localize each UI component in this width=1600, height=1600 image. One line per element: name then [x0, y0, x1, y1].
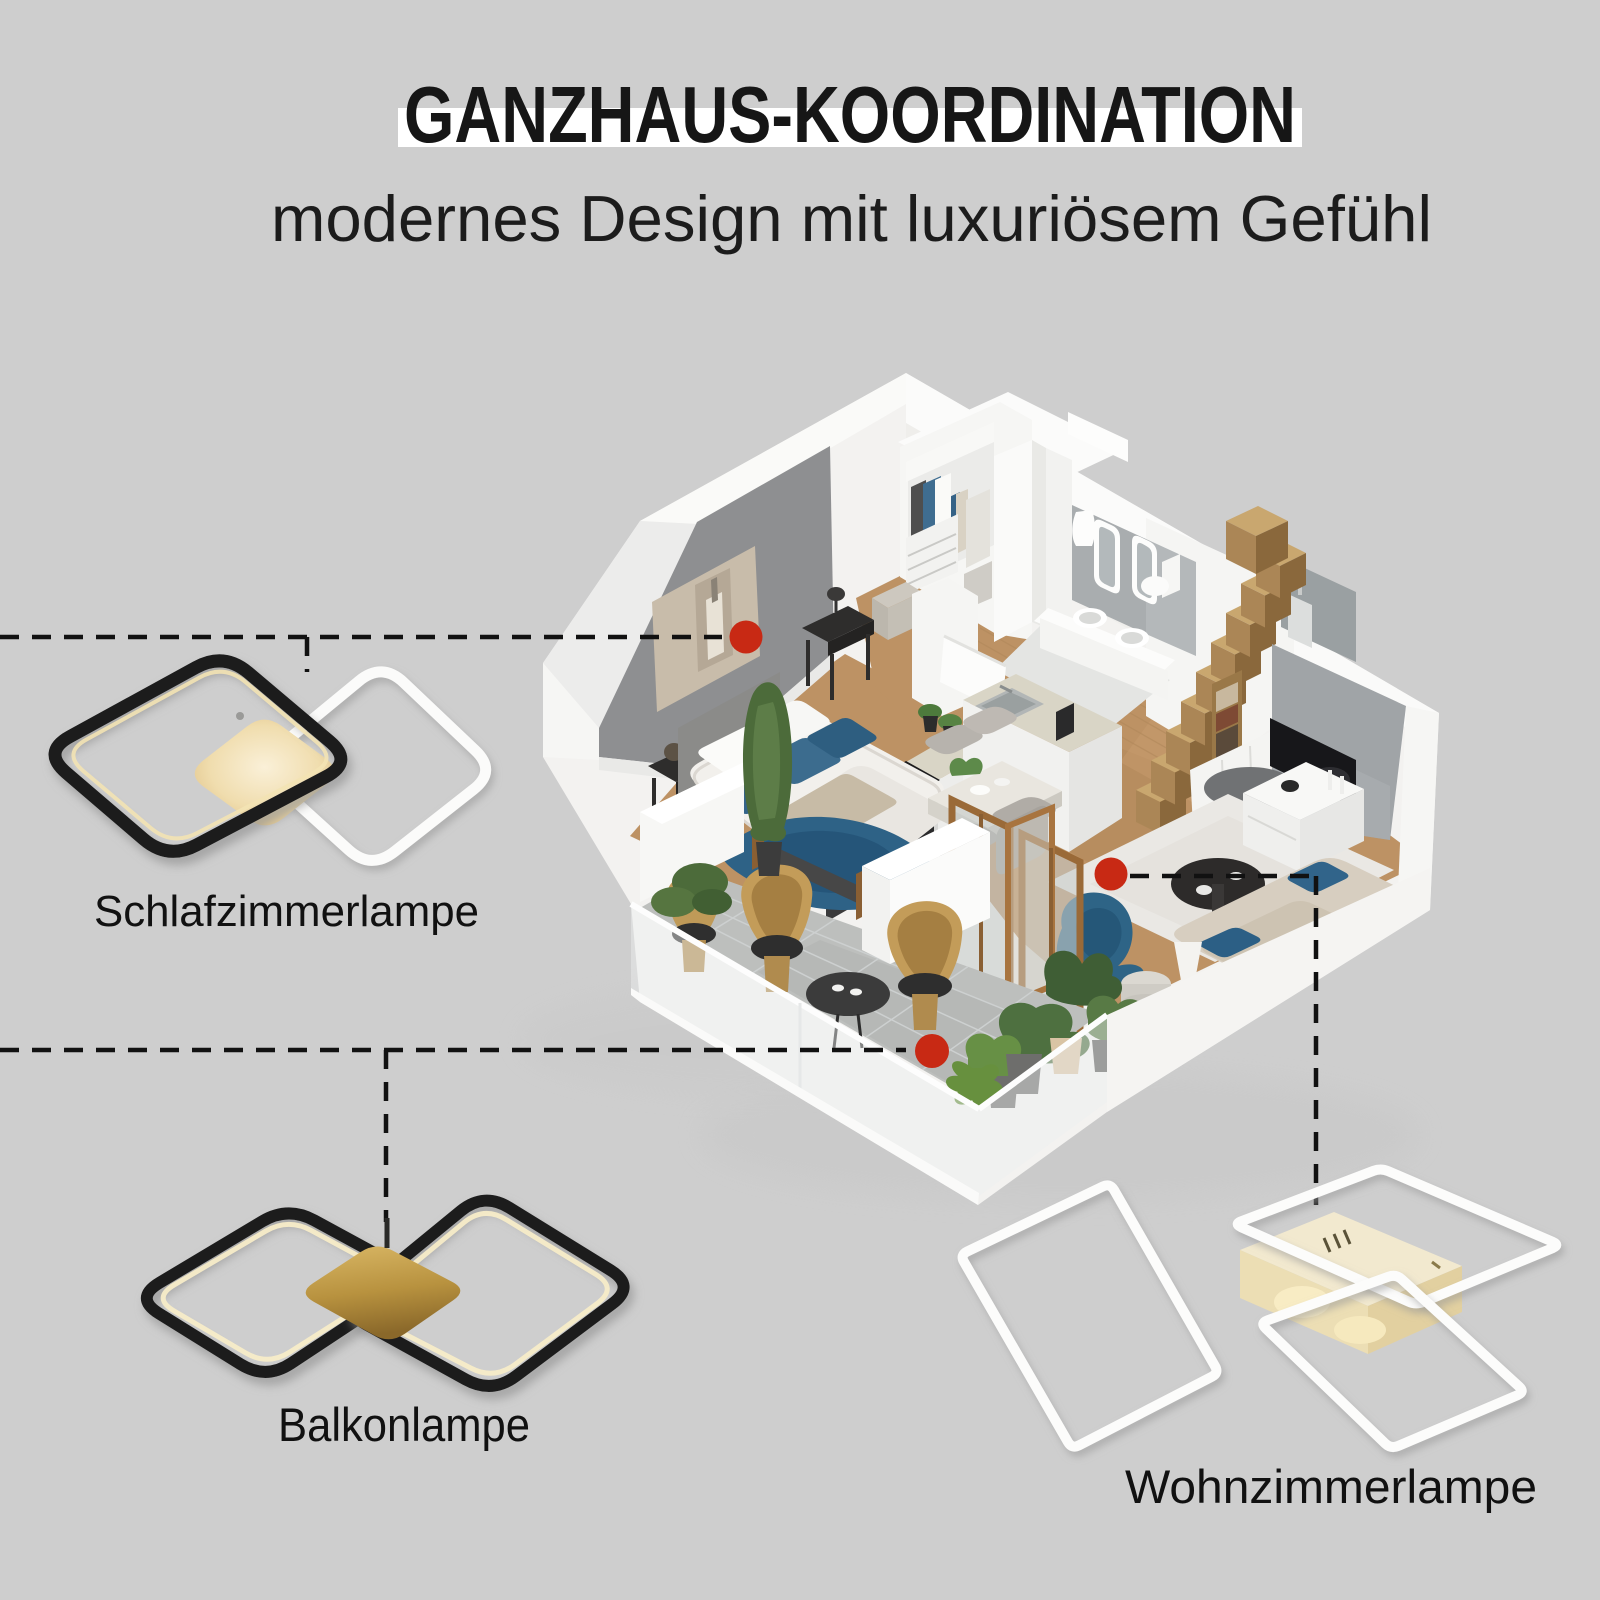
svg-text:modernes Design mit luxuriösem: modernes Design mit luxuriösem Gefühl [271, 182, 1432, 255]
svg-text:Balkonlampe: Balkonlampe [278, 1398, 530, 1451]
svg-text:Wohnzimmerlampe: Wohnzimmerlampe [1125, 1460, 1537, 1513]
svg-text:GANZHAUS-KOORDINATION: GANZHAUS-KOORDINATION [404, 70, 1296, 159]
svg-text:Schlafzimmerlampe: Schlafzimmerlampe [94, 887, 479, 936]
